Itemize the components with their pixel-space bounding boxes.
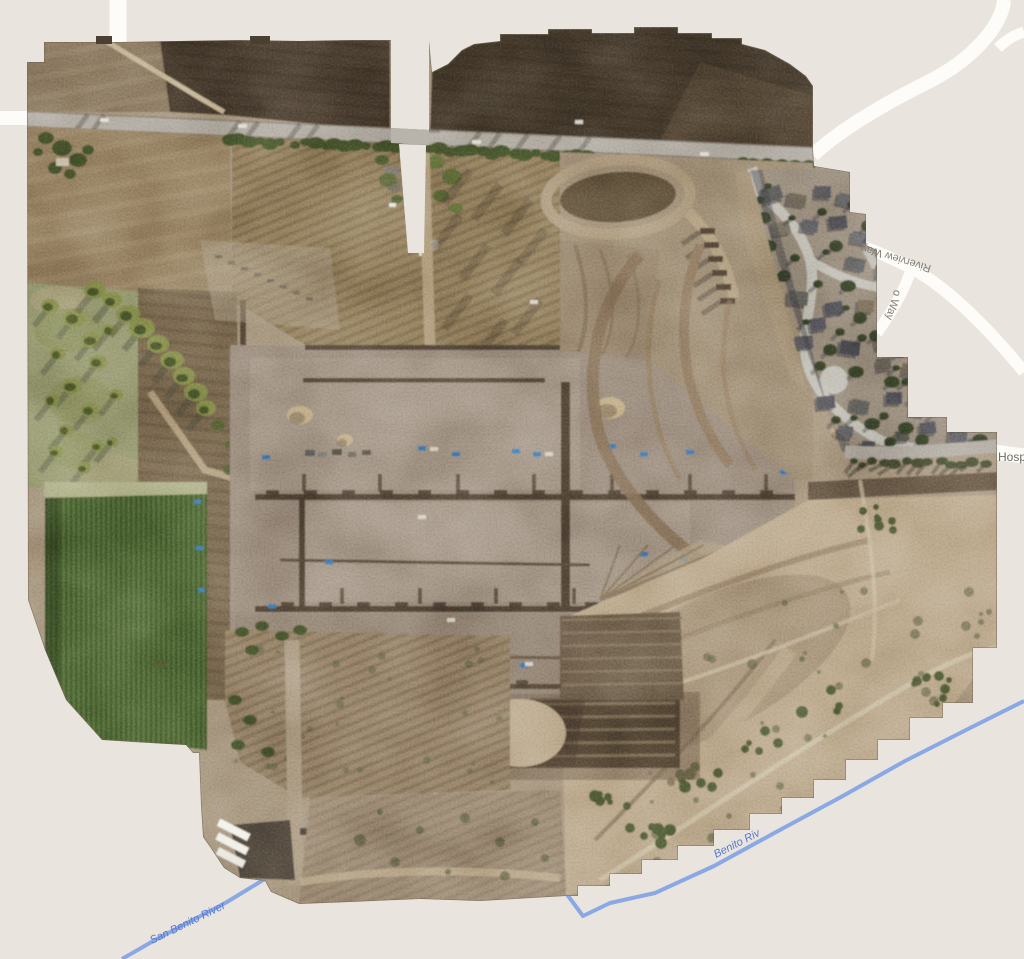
svg-text:Hosp: Hosp [998,450,1024,464]
